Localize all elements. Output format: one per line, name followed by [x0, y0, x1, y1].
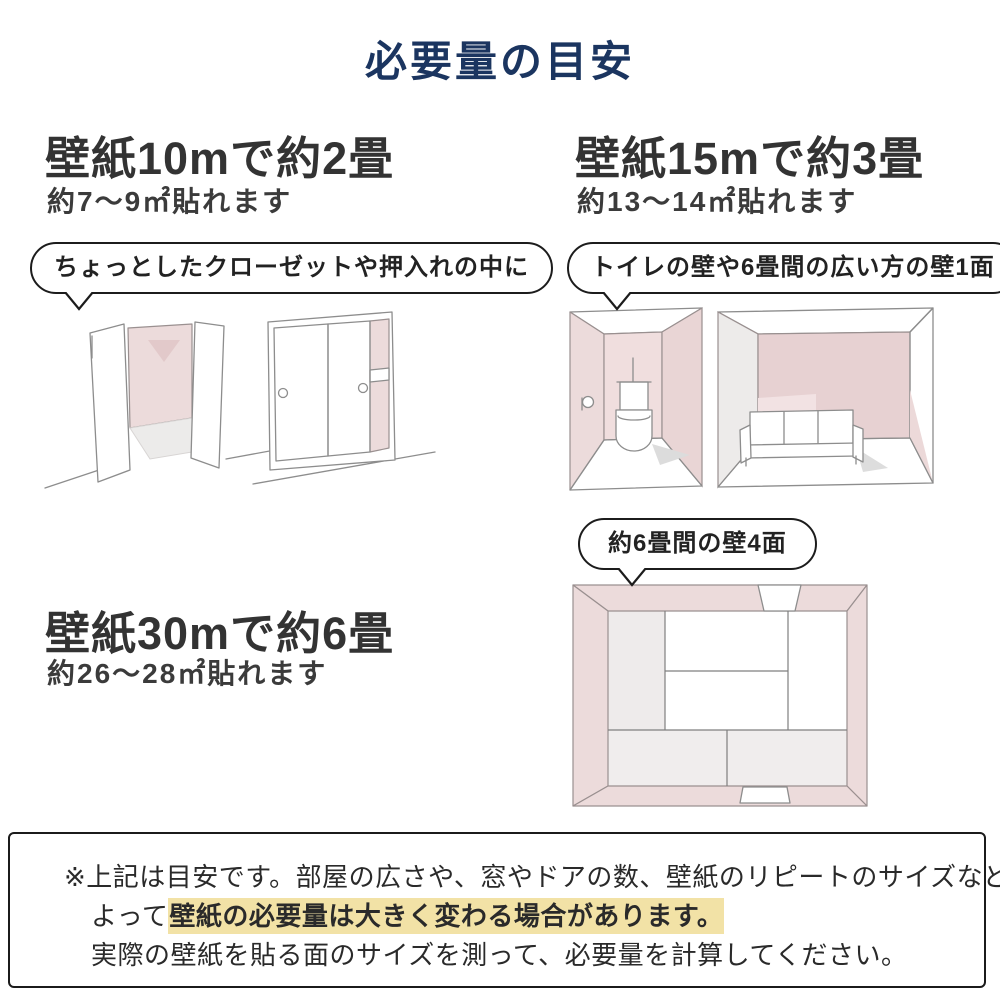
closet-illustrations: [40, 298, 480, 498]
section-10m-subtext: 約7〜9㎡貼れます: [47, 180, 292, 220]
note-line-3: 実際の壁紙を貼る面のサイズを測って、必要量を計算してください。: [91, 936, 984, 975]
room-illustrations: [558, 298, 948, 498]
note-line-1: ※上記は目安です。部屋の広さや、窓やドアの数、壁紙のリピートのサイズなどに: [64, 858, 984, 897]
section-30m-bubble: 約6畳間の壁4面: [578, 518, 817, 570]
bubble-tail-icon: [600, 292, 634, 312]
page-title: 必要量の目安: [0, 28, 1000, 89]
bubble-tail-icon: [62, 292, 96, 312]
section-30m-subtext: 約26〜28㎡貼れます: [47, 652, 327, 692]
section-10m-bubble: ちょっとしたクローゼットや押入れの中に: [30, 242, 553, 294]
section-15m-bubble: トイレの壁や6畳間の広い方の壁1面: [567, 242, 1000, 294]
six-mat-room-wall-sketch: [718, 308, 933, 487]
note-box: ※上記は目安です。部屋の広さや、窓やドアの数、壁紙のリピートのサイズなどに よっ…: [8, 832, 986, 988]
six-mat-room-top-view-sketch: [558, 580, 878, 812]
section-10m-heading: 壁紙10mで約2畳: [45, 122, 394, 187]
open-closet-sketch: [45, 322, 286, 488]
note-line-2: よって壁紙の必要量は大きく変わる場合があります。: [91, 897, 984, 936]
sliding-closet-sketch: [253, 312, 435, 484]
note-line-2-highlight: 壁紙の必要量は大きく変わる場合があります。: [168, 898, 724, 934]
section-15m-heading: 壁紙15mで約3畳: [575, 122, 924, 187]
bubble-tail-icon: [615, 568, 649, 588]
note-line-2-prefix: よって: [91, 901, 168, 931]
section-15m-subtext: 約13〜14㎡貼れます: [577, 180, 857, 220]
toilet-room-sketch: [570, 308, 702, 490]
